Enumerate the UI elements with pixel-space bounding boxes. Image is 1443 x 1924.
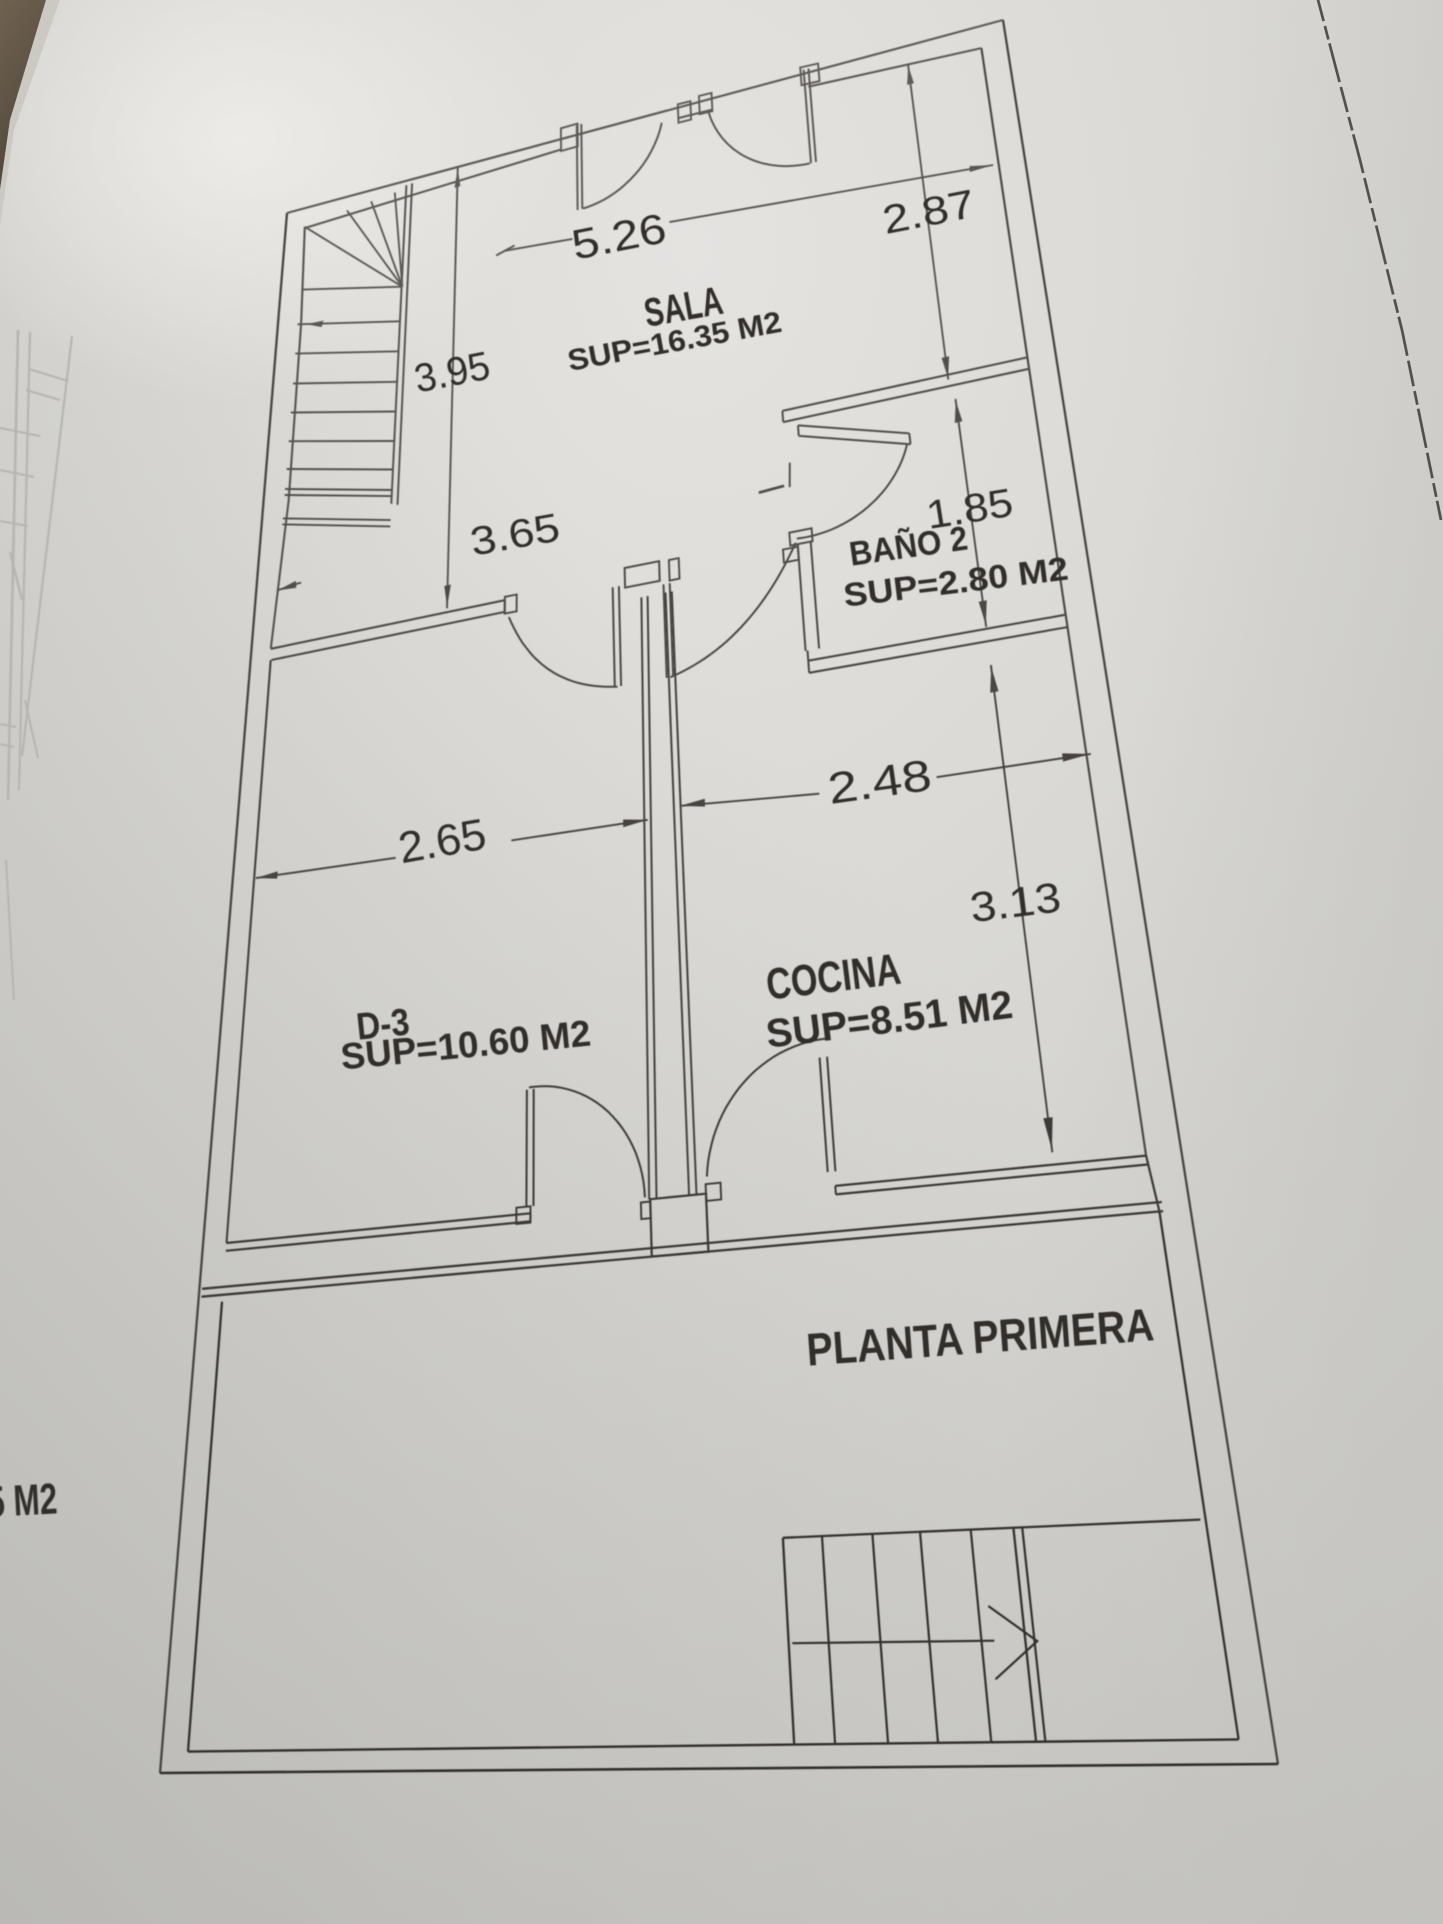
svg-text:5 M2: 5 M2 <box>0 1474 58 1527</box>
